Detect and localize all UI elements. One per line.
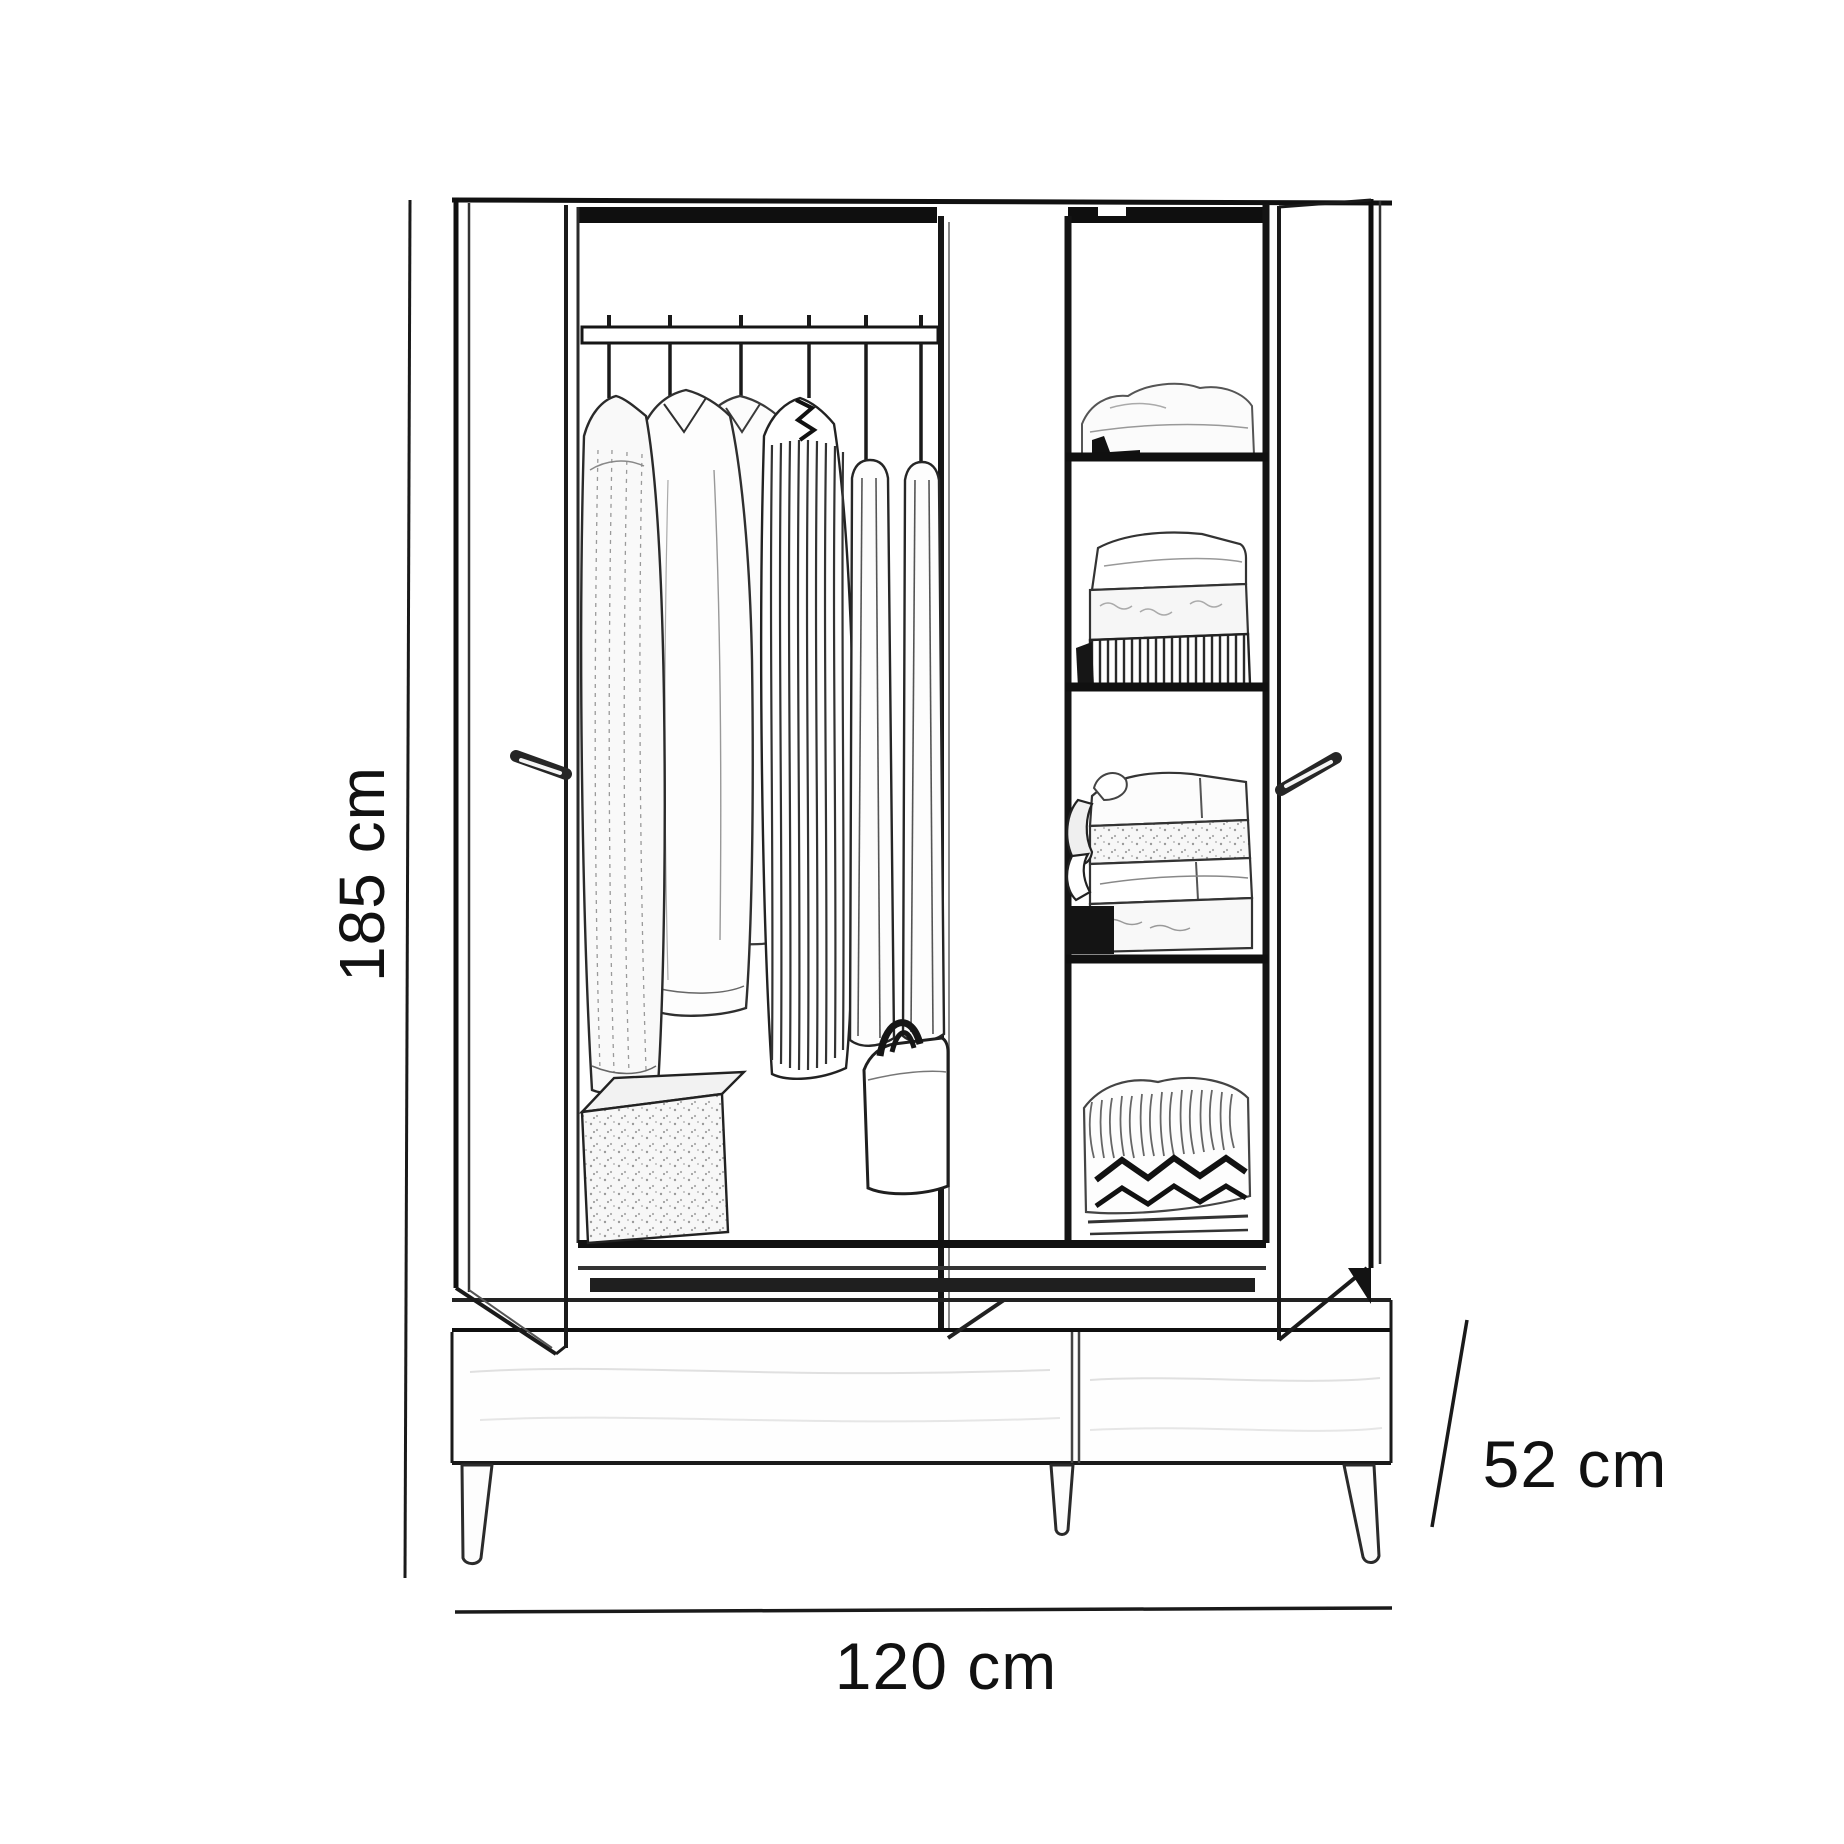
right-door-handle: [1281, 758, 1336, 790]
depth-dimension-label: 52 cm: [1483, 1426, 1668, 1502]
legs: [462, 1465, 1379, 1564]
height-dimension-line: [405, 200, 410, 1578]
leg-left: [462, 1465, 492, 1564]
wardrobe-sketch: [0, 0, 1844, 1844]
width-dimension-line: [455, 1608, 1392, 1612]
base-unit: [452, 1300, 1391, 1463]
tote-bag: [864, 1023, 948, 1194]
trousers-2: [903, 462, 944, 1042]
top-frame-shadow-right: [1068, 207, 1266, 223]
sweater-stack: [1067, 773, 1252, 954]
fringed-throw: [1084, 1078, 1250, 1234]
dimension-diagram: 185 cm 120 cm 52 cm: [0, 0, 1844, 1844]
right-door: [1279, 199, 1380, 1340]
leg-middle: [1051, 1465, 1073, 1535]
left-door: [456, 199, 566, 1354]
top-frame-shadow-left: [578, 207, 937, 223]
ribbed-knit: [1090, 634, 1250, 688]
hanging-section: [581, 315, 948, 1243]
trousers-1: [850, 460, 894, 1046]
width-dimension-label: 120 cm: [835, 1628, 1057, 1704]
left-door-handle: [516, 756, 566, 774]
cardigan: [581, 396, 665, 1093]
hanging-rail: [582, 327, 938, 343]
folded-stack: [1076, 533, 1250, 688]
folded-blanket: [1082, 384, 1254, 458]
leg-right: [1344, 1465, 1379, 1563]
striped-dress: [761, 398, 854, 1079]
height-dimension-label: 185 cm: [325, 766, 399, 982]
depth-dimension-line: [1432, 1320, 1467, 1527]
storage-box: [582, 1072, 744, 1243]
shelf-column: [1066, 384, 1268, 1234]
